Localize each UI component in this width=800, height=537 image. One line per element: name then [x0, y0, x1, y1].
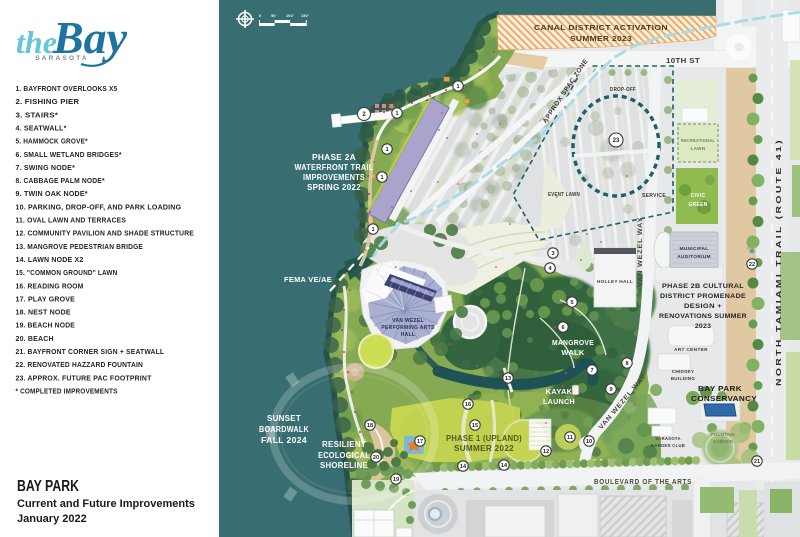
svg-text:18. NEST NODE: 18. NEST NODE [16, 308, 71, 317]
svg-text:CANAL DISTRICT ACTIVATION: CANAL DISTRICT ACTIVATION [534, 23, 668, 32]
svg-text:5: 5 [570, 300, 573, 306]
svg-text:2023: 2023 [695, 323, 711, 330]
svg-text:BUILDING: BUILDING [671, 376, 696, 381]
svg-text:LAUNCH: LAUNCH [543, 397, 575, 406]
svg-text:0: 0 [259, 14, 261, 18]
svg-text:4. SEATWALL*: 4. SEATWALL* [16, 123, 67, 132]
svg-text:HALL: HALL [401, 332, 416, 338]
svg-text:IMPROVEMENTS: IMPROVEMENTS [303, 173, 365, 182]
svg-text:BAY PARK: BAY PARK [698, 384, 742, 393]
svg-text:17. PLAY GROVE: 17. PLAY GROVE [16, 294, 76, 303]
svg-text:14. LAWN NODE X2: 14. LAWN NODE X2 [16, 255, 84, 264]
svg-text:7. SWING NODE*: 7. SWING NODE* [16, 163, 76, 172]
svg-text:12: 12 [543, 449, 549, 455]
svg-text:CIVIC: CIVIC [691, 193, 706, 199]
svg-text:1: 1 [395, 111, 398, 117]
svg-text:CHIDSEY: CHIDSEY [672, 369, 695, 374]
svg-text:2. FISHING PIER: 2. FISHING PIER [16, 97, 80, 106]
svg-text:7: 7 [590, 368, 593, 374]
svg-text:SARASOTA: SARASOTA [35, 55, 89, 62]
svg-text:22. RENOVATED HAZZARD FOUNTAIN: 22. RENOVATED HAZZARD FOUNTAIN [16, 360, 144, 369]
svg-text:GREEN: GREEN [688, 202, 707, 208]
svg-text:FALL 2024: FALL 2024 [261, 436, 307, 445]
svg-text:RECREATIONAL: RECREATIONAL [681, 138, 715, 143]
svg-text:8: 8 [625, 361, 628, 367]
svg-text:PHASE 2B CULTURAL: PHASE 2B CULTURAL [662, 283, 744, 290]
svg-text:BOULEVARD OF THE ARTS: BOULEVARD OF THE ARTS [594, 479, 692, 486]
svg-text:FOUNTAIN: FOUNTAIN [711, 432, 735, 437]
svg-text:1: 1 [456, 84, 459, 90]
svg-text:11: 11 [567, 435, 573, 441]
svg-text:WALK: WALK [561, 348, 585, 357]
svg-text:23: 23 [613, 138, 620, 144]
svg-text:January 2022: January 2022 [17, 513, 87, 525]
svg-text:6: 6 [561, 325, 564, 331]
svg-text:21. BAYFRONT CORNER SIGN + SEA: 21. BAYFRONT CORNER SIGN + SEATWALL [16, 347, 165, 356]
svg-text:MUNICIPAL: MUNICIPAL [680, 246, 709, 252]
svg-text:16. READING ROOM: 16. READING ROOM [16, 281, 84, 290]
svg-text:SUNSET: SUNSET [267, 414, 301, 423]
svg-text:BOARDWALK: BOARDWALK [259, 425, 309, 434]
svg-text:17: 17 [417, 439, 423, 445]
svg-text:20: 20 [373, 455, 379, 461]
svg-text:100': 100' [286, 14, 294, 18]
svg-text:9: 9 [609, 387, 612, 393]
svg-text:DROP-OFF: DROP-OFF [610, 87, 636, 93]
svg-text:3: 3 [551, 251, 554, 257]
svg-text:10: 10 [586, 439, 592, 445]
svg-text:10TH ST: 10TH ST [666, 58, 700, 65]
svg-text:KAYAK: KAYAK [546, 387, 573, 396]
svg-text:WATERFRONT TRAIL: WATERFRONT TRAIL [295, 163, 374, 172]
svg-text:1: 1 [385, 147, 388, 153]
svg-text:16: 16 [465, 402, 471, 408]
svg-text:15. "COMMON GROUND" LAWN: 15. "COMMON GROUND" LAWN [16, 268, 118, 277]
svg-text:23. APPROX. FUTURE PAC FOOTPRI: 23. APPROX. FUTURE PAC FOOTPRINT [16, 373, 152, 382]
svg-text:GARDEN CLUB: GARDEN CLUB [651, 443, 685, 448]
svg-text:LAWN: LAWN [691, 146, 706, 151]
svg-text:* COMPLETED IMPROVEMENTS: * COMPLETED IMPROVEMENTS [16, 386, 118, 395]
svg-text:9. TWIN OAK NODE*: 9. TWIN OAK NODE* [16, 189, 88, 198]
svg-text:8. CABBAGE PALM NODE*: 8. CABBAGE PALM NODE* [16, 176, 105, 185]
svg-text:HOLLEY HALL: HOLLEY HALL [597, 279, 633, 285]
svg-text:Current and Future Improvement: Current and Future Improvements [17, 498, 195, 510]
svg-text:SUMMER 2022: SUMMER 2022 [454, 444, 514, 453]
svg-text:EVENT LAWN: EVENT LAWN [548, 192, 580, 198]
svg-text:RESILIENT: RESILIENT [322, 440, 366, 449]
svg-text:13. MANGROVE PEDESTRIAN BRIDGE: 13. MANGROVE PEDESTRIAN BRIDGE [16, 242, 144, 251]
svg-text:150': 150' [301, 14, 309, 18]
svg-text:SPRING 2022: SPRING 2022 [307, 183, 361, 192]
svg-text:1: 1 [380, 175, 383, 181]
svg-text:PERFORMING ARTS: PERFORMING ARTS [381, 325, 435, 331]
svg-text:PHASE 1 (UPLAND): PHASE 1 (UPLAND) [446, 434, 522, 443]
svg-text:SERVICE: SERVICE [642, 193, 666, 199]
svg-text:50': 50' [271, 14, 277, 18]
svg-text:FEMA VE/AE: FEMA VE/AE [284, 275, 332, 284]
svg-text:DISTRICT PROMENADE: DISTRICT PROMENADE [660, 293, 746, 300]
svg-text:ART CENTER: ART CENTER [674, 347, 708, 353]
svg-text:SUMMER 2023: SUMMER 2023 [570, 34, 632, 43]
svg-text:14: 14 [460, 464, 467, 470]
svg-text:22: 22 [749, 262, 755, 268]
svg-text:VAN WEZEL WAY: VAN WEZEL WAY [637, 217, 644, 287]
svg-text:BAY PARK: BAY PARK [17, 478, 79, 495]
svg-text:20. BEACH: 20. BEACH [16, 334, 54, 343]
svg-text:12. COMMUNITY PAVILION AND SHA: 12. COMMUNITY PAVILION AND SHADE STRUCTU… [16, 229, 195, 238]
svg-text:NORTH TAMIAMI TRAIL (ROUTE 41): NORTH TAMIAMI TRAIL (ROUTE 41) [776, 138, 783, 386]
svg-text:GARDEN: GARDEN [713, 439, 733, 444]
svg-text:6. SMALL WETLAND BRIDGES*: 6. SMALL WETLAND BRIDGES* [16, 150, 122, 159]
svg-text:CONSERVANCY: CONSERVANCY [691, 394, 757, 403]
svg-text:19. BEACH NODE: 19. BEACH NODE [16, 321, 76, 330]
svg-text:VAN WEZEL: VAN WEZEL [392, 318, 424, 324]
svg-text:21: 21 [754, 459, 760, 465]
svg-text:5. HAMMOCK GROVE*: 5. HAMMOCK GROVE* [16, 137, 88, 146]
svg-text:19: 19 [393, 477, 399, 483]
svg-text:1: 1 [371, 227, 374, 233]
svg-text:3. STAIRS*: 3. STAIRS* [16, 110, 59, 119]
svg-text:AUDITORIUM: AUDITORIUM [677, 254, 711, 260]
svg-text:11. OVAL LAWN AND TERRACES: 11. OVAL LAWN AND TERRACES [16, 216, 127, 225]
svg-text:13: 13 [505, 376, 511, 382]
svg-text:10. PARKING, DROP-OFF, AND PAR: 10. PARKING, DROP-OFF, AND PARK LOADING [16, 202, 182, 211]
svg-text:DESIGN +: DESIGN + [684, 303, 722, 310]
svg-text:SARASOTA: SARASOTA [655, 436, 681, 441]
svg-text:ECOLOGICAL: ECOLOGICAL [318, 451, 370, 460]
svg-text:MANGROVE: MANGROVE [552, 338, 594, 347]
svg-text:18: 18 [367, 423, 373, 429]
svg-text:15: 15 [472, 423, 478, 429]
svg-text:1. BAYFRONT OVERLOOKS X5: 1. BAYFRONT OVERLOOKS X5 [16, 84, 118, 93]
svg-text:14: 14 [501, 463, 508, 469]
svg-text:PHASE 2A: PHASE 2A [312, 153, 356, 162]
svg-text:RENOVATIONS SUMMER: RENOVATIONS SUMMER [659, 313, 747, 320]
svg-text:SHORELINE: SHORELINE [320, 461, 368, 470]
